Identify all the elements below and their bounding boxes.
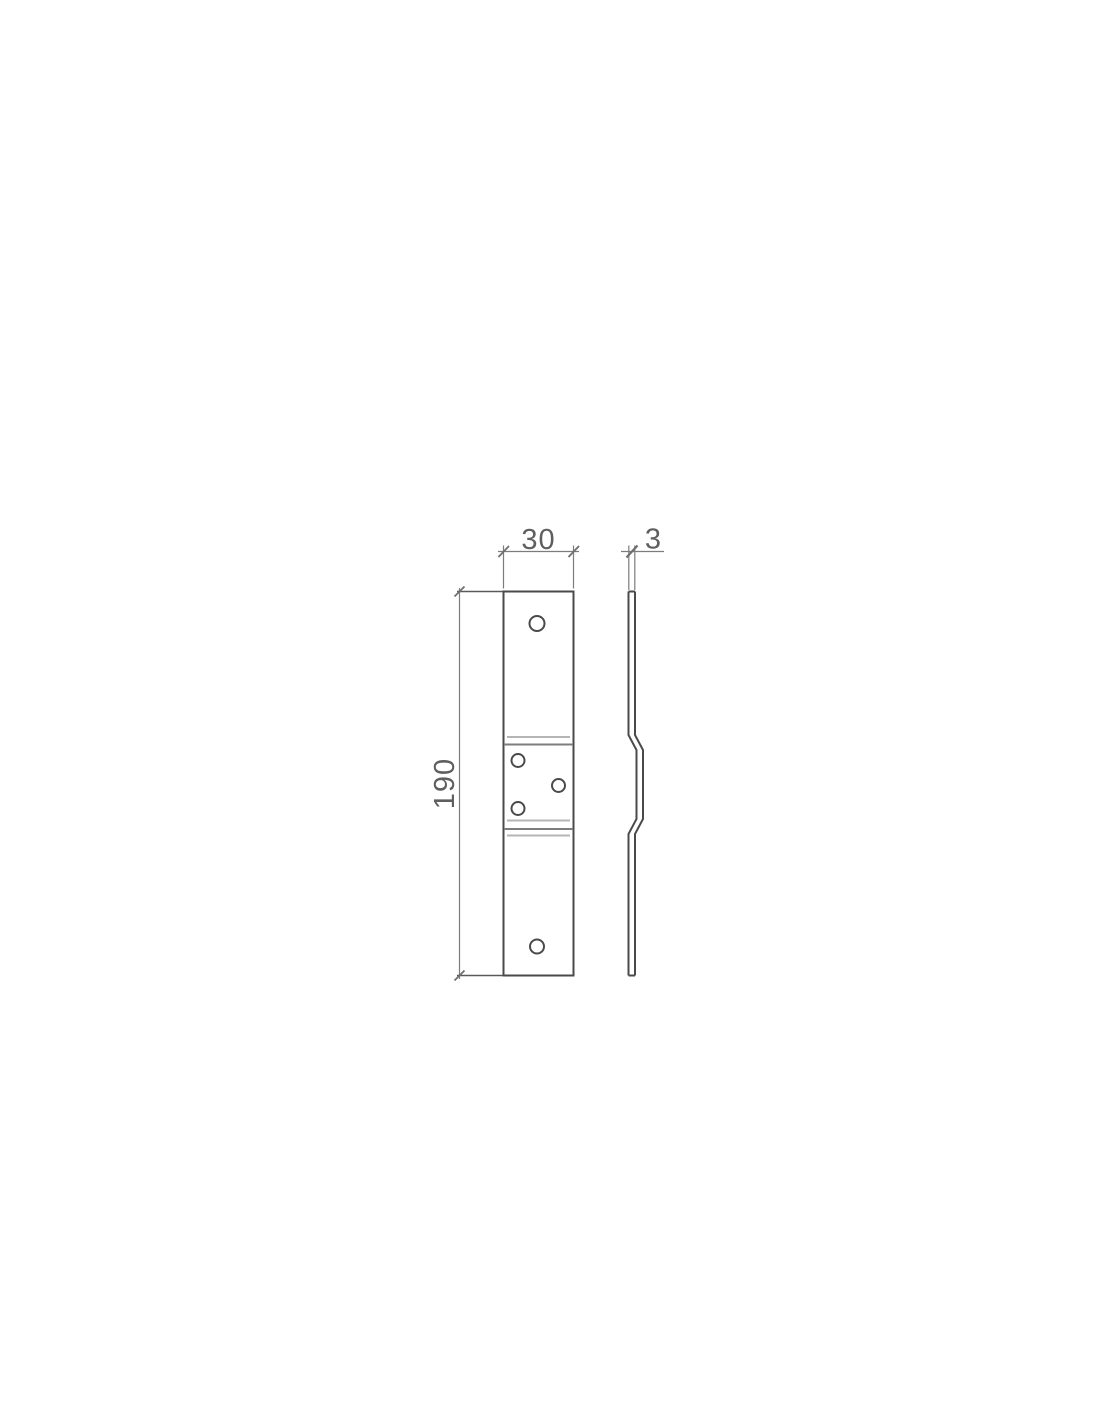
dimension-thickness: 3 (621, 524, 664, 591)
technical-drawing: 30 3 190 (0, 0, 1100, 1422)
dimension-width-label: 30 (521, 524, 555, 556)
drawing-canvas: 30 3 190 (0, 0, 1100, 1422)
front-view (504, 592, 574, 976)
hole-bottom (530, 940, 544, 954)
side-view (629, 592, 644, 976)
dimension-width: 30 (498, 524, 579, 589)
hole-top (530, 616, 545, 631)
hole-middle-right (552, 779, 565, 792)
dimension-thickness-label: 3 (645, 524, 662, 556)
hole-middle-lower-left (512, 802, 525, 815)
hole-middle-upper-left (512, 754, 525, 767)
dimension-height-label: 190 (429, 758, 461, 809)
dimension-height: 190 (429, 587, 503, 981)
